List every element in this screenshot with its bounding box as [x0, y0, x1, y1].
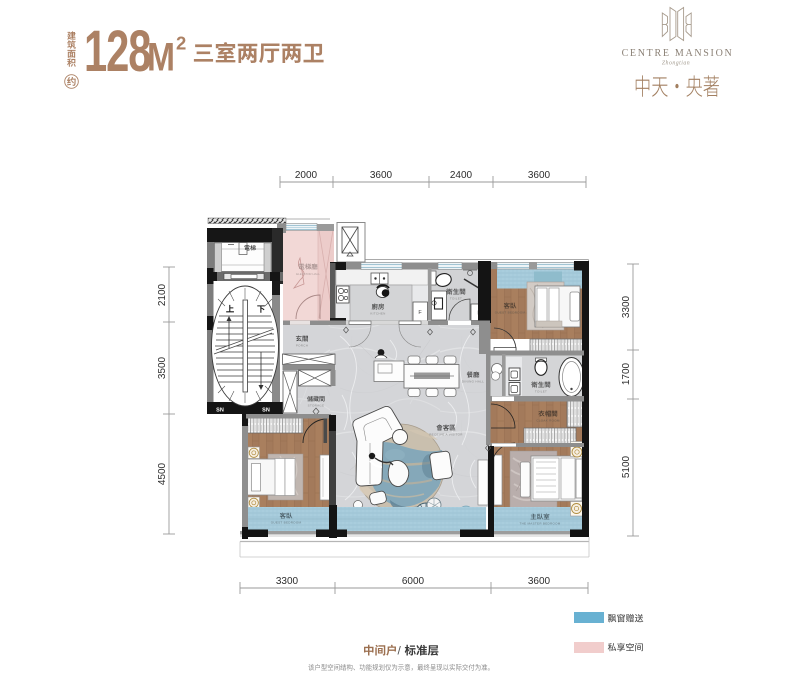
- svg-text:M: M: [147, 35, 175, 79]
- svg-text:PORCH: PORCH: [296, 344, 308, 348]
- svg-text:2000: 2000: [295, 170, 318, 181]
- svg-text:ELEVATOR HALL: ELEVATOR HALL: [296, 272, 320, 276]
- svg-text:KITCHEN: KITCHEN: [370, 312, 385, 316]
- svg-text:TOILET: TOILET: [450, 297, 462, 301]
- svg-text:3600: 3600: [528, 576, 551, 587]
- svg-text:3500: 3500: [157, 356, 168, 379]
- svg-text:CENTRE MANSION: CENTRE MANSION: [622, 48, 734, 59]
- svg-text:DINING HALL: DINING HALL: [462, 380, 484, 384]
- svg-text:2: 2: [176, 33, 186, 54]
- svg-text:6000: 6000: [402, 576, 425, 587]
- svg-text:TOILET: TOILET: [535, 390, 547, 394]
- svg-text:1700: 1700: [621, 362, 632, 385]
- svg-text:CLOAK ROOM: CLOAK ROOM: [536, 419, 560, 423]
- svg-text:STORAGE: STORAGE: [308, 404, 325, 408]
- svg-text:3600: 3600: [370, 170, 393, 181]
- svg-text:Zhongtian: Zhongtian: [662, 61, 690, 67]
- svg-text:SN: SN: [216, 408, 224, 414]
- svg-text:RECEIVE A VISITOR: RECEIVE A VISITOR: [429, 433, 463, 437]
- svg-text:3300: 3300: [621, 295, 632, 318]
- svg-text:THE MASTER BEDROOM: THE MASTER BEDROOM: [519, 522, 560, 526]
- svg-text:4500: 4500: [157, 462, 168, 485]
- svg-text:SN: SN: [262, 408, 270, 414]
- svg-text:3600: 3600: [528, 170, 551, 181]
- svg-text:3300: 3300: [276, 576, 299, 587]
- svg-text:GUEST BEDROOM: GUEST BEDROOM: [495, 311, 526, 315]
- svg-text:128: 128: [84, 18, 151, 83]
- svg-text:GUEST BEDROOM: GUEST BEDROOM: [271, 521, 302, 525]
- svg-text:2400: 2400: [450, 170, 473, 181]
- svg-text:2100: 2100: [157, 283, 168, 306]
- svg-text:5100: 5100: [621, 455, 632, 478]
